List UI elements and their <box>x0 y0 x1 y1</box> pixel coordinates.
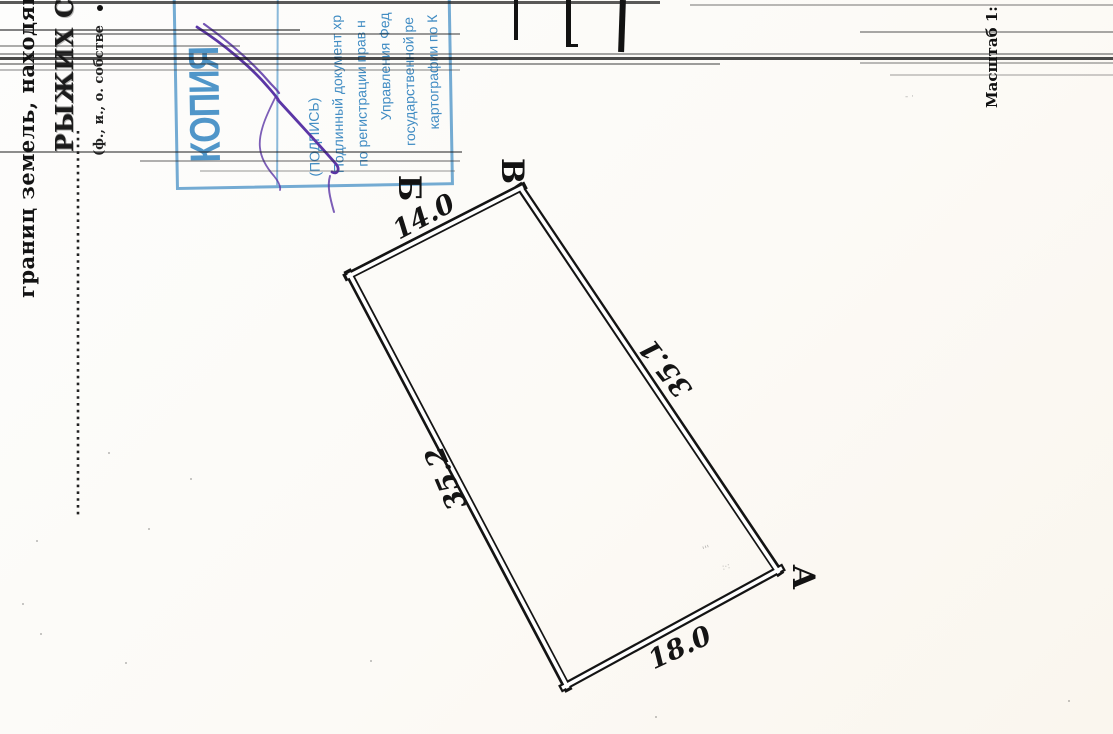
scan-streak <box>0 53 1113 55</box>
corner-label-b: Б <box>391 175 427 202</box>
scanned-land-plan-page: КОПИЯ (ПОДПИСЬ) Подлинный документ хр по… <box>0 0 1113 734</box>
scan-streak <box>200 170 455 172</box>
scan-streak <box>0 63 720 65</box>
cutoff-stroke <box>514 0 518 40</box>
scan-streak <box>690 4 1113 6</box>
owner-name-text: РЫЖИХ С.А <box>50 0 79 152</box>
ink-dot <box>97 5 103 11</box>
scan-streak <box>0 45 240 47</box>
noise-dot <box>40 633 42 635</box>
scan-streak <box>140 160 460 162</box>
noise-dot <box>148 528 150 530</box>
corner-label-a: А <box>785 564 821 589</box>
plot-outline <box>344 184 784 691</box>
scan-streak <box>0 57 1113 60</box>
noise-dot <box>125 662 127 664</box>
scan-streak <box>890 74 1113 76</box>
scan-streak <box>860 62 1113 64</box>
scan-streak <box>0 29 300 31</box>
pencil-smudge: - · <box>905 92 914 102</box>
scan-streak <box>60 33 460 35</box>
noise-dot <box>370 660 372 662</box>
noise-dot <box>108 452 110 454</box>
scan-streak <box>0 1 660 4</box>
scan-streak <box>0 69 460 71</box>
noise-dot <box>190 478 192 480</box>
drawing-layer <box>0 0 1113 734</box>
noise-dot <box>1068 700 1070 702</box>
corner-label-v: В <box>494 158 530 184</box>
noise-dot <box>36 540 38 542</box>
noise-dot <box>22 603 24 605</box>
cutoff-stroke <box>566 44 578 47</box>
plot-outline-core <box>347 187 782 688</box>
noise-dot <box>655 716 657 718</box>
cutoff-stroke <box>566 0 571 47</box>
scan-streak <box>0 151 462 153</box>
scan-streak <box>860 31 1113 33</box>
